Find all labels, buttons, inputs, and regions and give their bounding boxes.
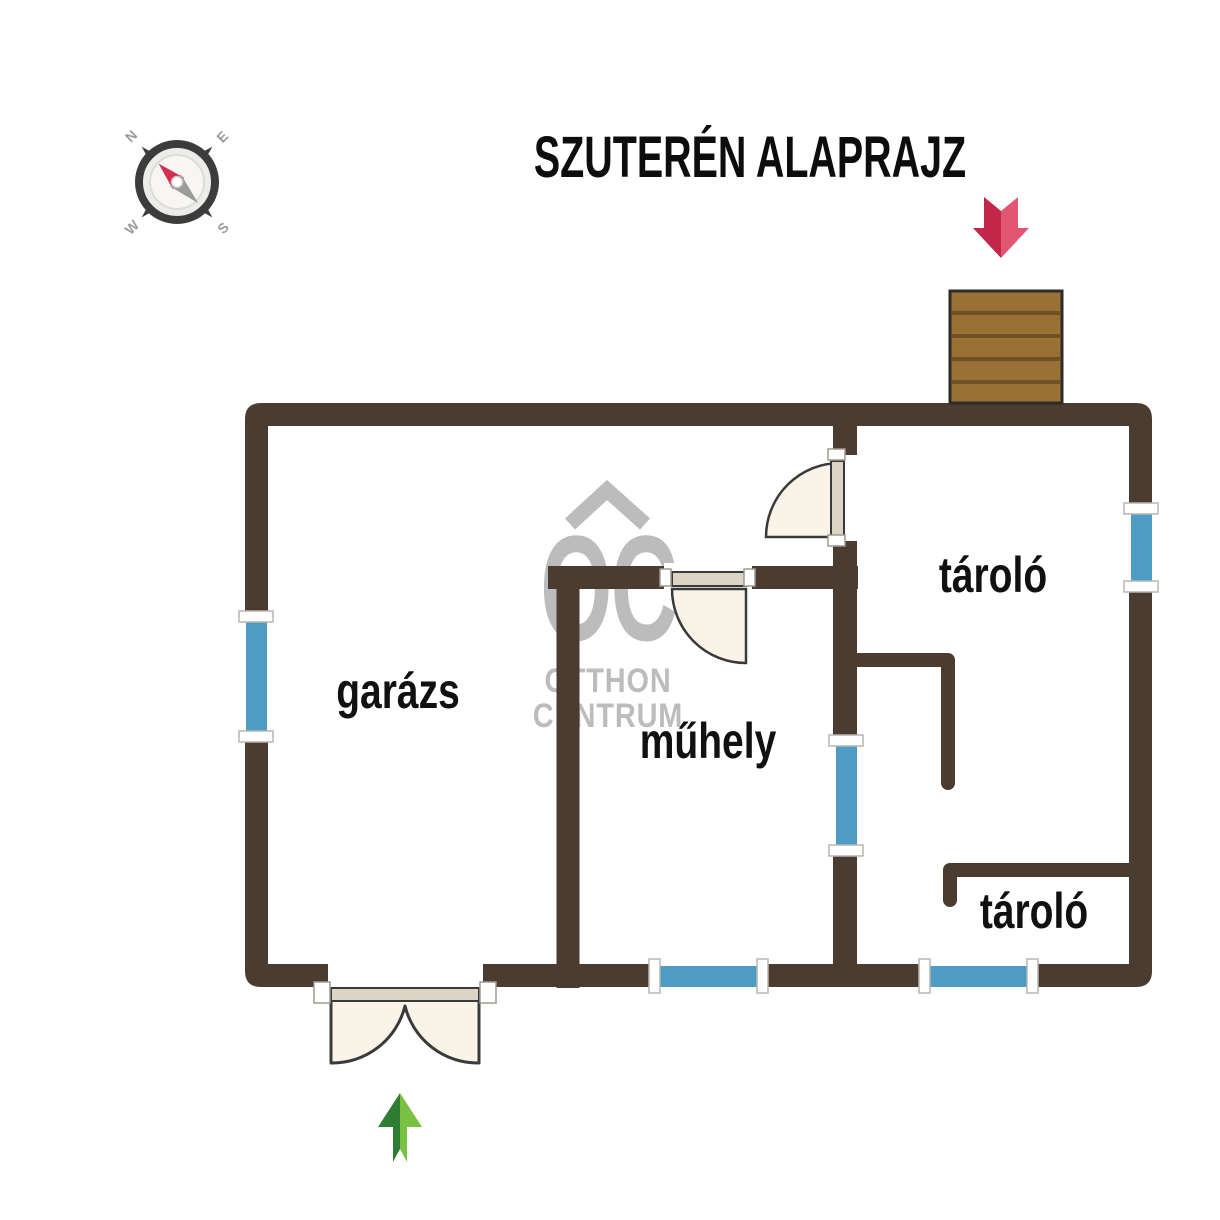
room-label-storage-bottom: tároló bbox=[980, 882, 1088, 939]
door-leaf bbox=[672, 572, 746, 586]
door-leaf bbox=[831, 461, 844, 537]
stairs-icon bbox=[950, 291, 1062, 403]
room-label-storage-top: tároló bbox=[939, 546, 1047, 603]
page-title: SZUTERÉN ALAPRAJZ bbox=[534, 124, 966, 189]
room-label-workshop: műhely bbox=[640, 712, 777, 769]
watermark: OC OTTHON CENTRUM bbox=[533, 490, 683, 735]
door-leaf bbox=[331, 988, 479, 1001]
room-label-garage: garázs bbox=[336, 662, 460, 719]
gap-garage-door bbox=[328, 962, 483, 990]
floor-plan: OC OTTHON CENTRUM bbox=[0, 0, 1220, 1220]
